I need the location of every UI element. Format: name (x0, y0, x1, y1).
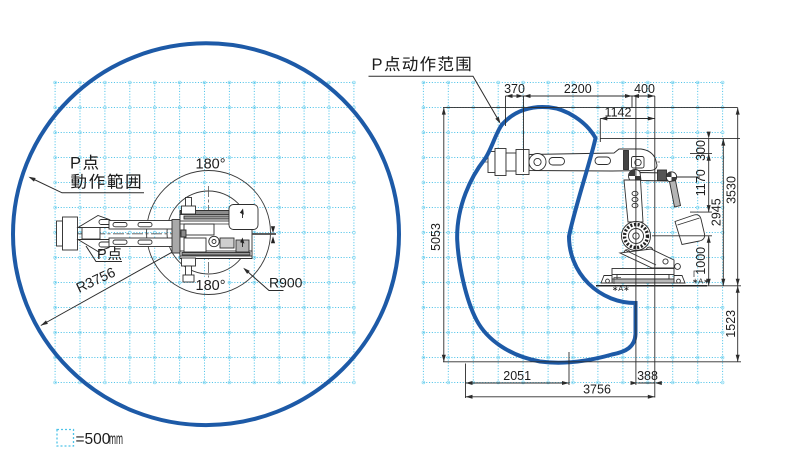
svg-text:P: P (97, 247, 107, 263)
svg-text:2051: 2051 (503, 369, 531, 383)
svg-text:3530: 3530 (725, 176, 739, 204)
svg-text:1000: 1000 (694, 247, 708, 275)
svg-text:1523: 1523 (724, 310, 738, 338)
svg-text:180°: 180° (196, 157, 226, 173)
svg-text:R900: R900 (269, 275, 303, 291)
svg-text:P: P (372, 56, 383, 74)
svg-text:∗A∗: ∗A∗ (692, 277, 710, 286)
svg-text:∗A∗: ∗A∗ (612, 284, 630, 293)
svg-text:=500: =500 (76, 431, 111, 448)
svg-text:mm: mm (109, 431, 123, 448)
svg-text:5053: 5053 (429, 223, 443, 251)
svg-text:P: P (70, 155, 81, 173)
svg-text:1170: 1170 (694, 169, 708, 196)
svg-text:370: 370 (504, 82, 525, 96)
svg-text:2945: 2945 (709, 198, 723, 226)
svg-text:388: 388 (637, 369, 658, 383)
svg-text:300: 300 (694, 140, 708, 161)
svg-text:3756: 3756 (583, 383, 611, 397)
svg-text:2200: 2200 (564, 82, 592, 96)
svg-text:180°: 180° (196, 278, 226, 294)
svg-text:1142: 1142 (605, 106, 632, 120)
svg-text:400: 400 (634, 82, 655, 96)
